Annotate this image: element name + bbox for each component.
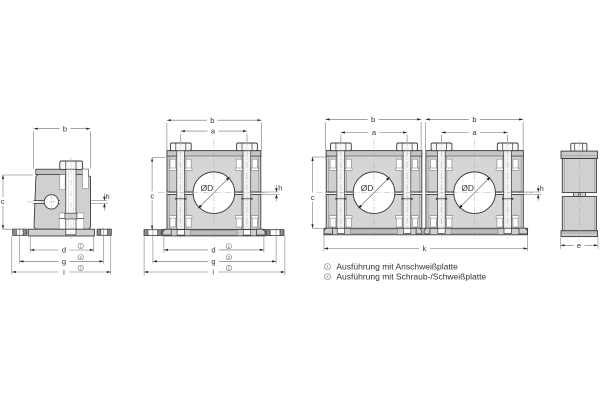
svg-text:d: d — [62, 246, 66, 255]
svg-text:b: b — [472, 115, 476, 124]
svg-text:h: h — [278, 185, 282, 192]
svg-text:b: b — [210, 116, 214, 125]
svg-text:d: d — [211, 246, 215, 255]
svg-text:h: h — [540, 186, 544, 193]
svg-text:c: c — [150, 191, 154, 200]
svg-text:ØD: ØD — [201, 183, 214, 193]
svg-text:c: c — [1, 197, 5, 206]
svg-text:g: g — [62, 257, 66, 266]
svg-text:h: h — [106, 194, 110, 201]
svg-text:ØD: ØD — [361, 183, 374, 193]
svg-text:b: b — [63, 124, 67, 133]
svg-text:Ausführung mit Schraub-/Schwei: Ausführung mit Schraub-/Schweißplatte — [336, 272, 486, 282]
svg-text:e: e — [577, 241, 581, 250]
svg-text:c: c — [311, 193, 315, 202]
svg-text:g: g — [211, 257, 215, 266]
svg-text:k: k — [423, 244, 427, 253]
svg-text:Ausführung mit Anschweißplatte: Ausführung mit Anschweißplatte — [336, 262, 458, 272]
svg-text:ØD: ØD — [461, 183, 474, 193]
svg-text:b: b — [371, 115, 375, 124]
